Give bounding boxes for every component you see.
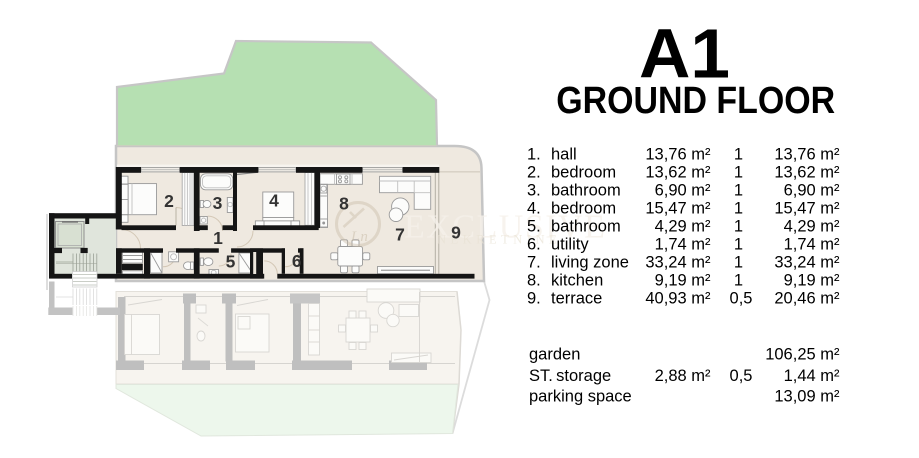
svg-text:2,88 m²: 2,88 m² [655, 367, 711, 385]
svg-text:GROUND FLOOR: GROUND FLOOR [556, 80, 835, 122]
svg-text:4,29 m²: 4,29 m² [784, 217, 840, 235]
svg-text:8.: 8. [527, 271, 541, 289]
svg-text:5: 5 [226, 252, 236, 272]
svg-text:bathroom: bathroom [551, 217, 621, 235]
svg-text:40,93 m²: 40,93 m² [645, 289, 711, 307]
svg-text:13,76 m²: 13,76 m² [774, 145, 840, 163]
svg-text:5.: 5. [527, 217, 541, 235]
svg-text:7: 7 [395, 225, 405, 245]
svg-text:1: 1 [734, 181, 743, 199]
svg-text:kitchen: kitchen [551, 271, 603, 289]
svg-text:ST. storage: ST. storage [529, 367, 611, 385]
svg-text:6,90 m²: 6,90 m² [655, 181, 711, 199]
svg-text:1,74 m²: 1,74 m² [655, 235, 711, 253]
svg-text:2.: 2. [527, 163, 541, 181]
svg-text:Ln: Ln [350, 229, 369, 245]
svg-text:0,5: 0,5 [730, 367, 753, 385]
svg-text:1.: 1. [527, 145, 541, 163]
svg-text:6,90 m²: 6,90 m² [784, 181, 840, 199]
svg-text:9,19 m²: 9,19 m² [655, 271, 711, 289]
svg-text:8: 8 [339, 194, 349, 214]
svg-text:13,62 m²: 13,62 m² [645, 163, 711, 181]
svg-text:15,47 m²: 15,47 m² [774, 199, 840, 217]
svg-text:terrace: terrace [551, 289, 602, 307]
svg-text:bedroom: bedroom [551, 163, 616, 181]
svg-text:13,62 m²: 13,62 m² [774, 163, 840, 181]
svg-text:1: 1 [734, 163, 743, 181]
svg-text:33,24 m²: 33,24 m² [774, 253, 840, 271]
svg-text:3.: 3. [527, 181, 541, 199]
svg-text:1: 1 [734, 217, 743, 235]
svg-text:13,09 m²: 13,09 m² [774, 388, 840, 406]
svg-text:106,25 m²: 106,25 m² [765, 346, 840, 364]
svg-text:15,47 m²: 15,47 m² [645, 199, 711, 217]
svg-text:4,29 m²: 4,29 m² [655, 217, 711, 235]
svg-text:utility: utility [551, 235, 589, 253]
svg-text:hall: hall [551, 145, 577, 163]
svg-text:4.: 4. [527, 199, 541, 217]
svg-text:9,19 m²: 9,19 m² [784, 271, 840, 289]
svg-text:living zone: living zone [551, 253, 629, 271]
svg-text:9.: 9. [527, 289, 541, 307]
svg-text:9: 9 [451, 223, 461, 243]
svg-text:13,76 m²: 13,76 m² [645, 145, 711, 163]
svg-text:bathroom: bathroom [551, 181, 621, 199]
svg-text:2: 2 [164, 191, 174, 211]
svg-text:1: 1 [734, 271, 743, 289]
svg-text:bedroom: bedroom [551, 199, 616, 217]
svg-text:1: 1 [213, 228, 223, 248]
svg-text:parking space: parking space [529, 388, 632, 406]
svg-text:7.: 7. [527, 253, 541, 271]
svg-text:1: 1 [734, 235, 743, 253]
svg-text:33,24 m²: 33,24 m² [645, 253, 711, 271]
svg-text:4: 4 [269, 191, 279, 211]
svg-text:1,44 m²: 1,44 m² [784, 367, 840, 385]
svg-text:0,5: 0,5 [730, 289, 753, 307]
svg-text:20,46 m²: 20,46 m² [774, 289, 840, 307]
svg-text:garden: garden [529, 346, 580, 364]
svg-text:6.: 6. [527, 235, 541, 253]
svg-text:6: 6 [292, 251, 302, 271]
svg-text:1: 1 [734, 253, 743, 271]
svg-text:1: 1 [734, 145, 743, 163]
svg-text:3: 3 [213, 193, 223, 213]
svg-text:1,74 m²: 1,74 m² [784, 235, 840, 253]
svg-text:1: 1 [734, 199, 743, 217]
